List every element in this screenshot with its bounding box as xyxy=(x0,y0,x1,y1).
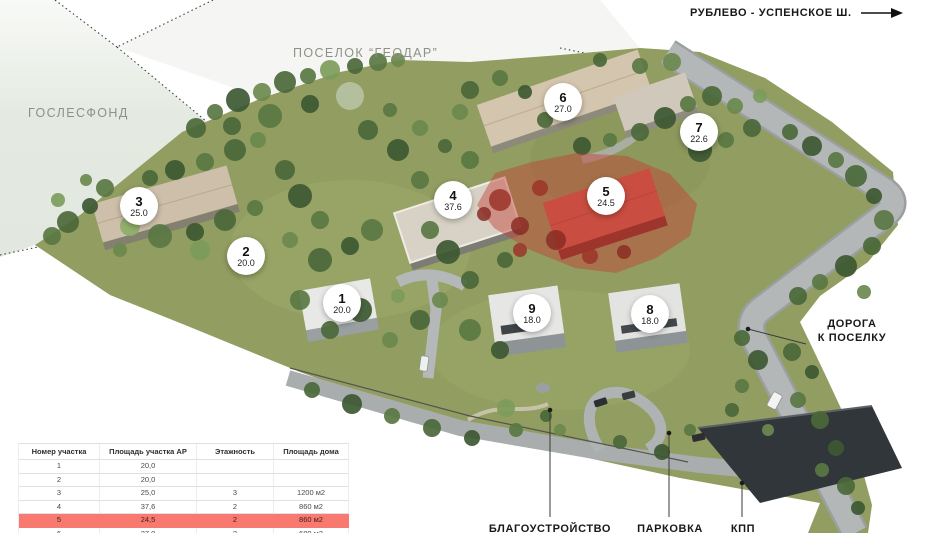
plot-area: 24.5 xyxy=(597,198,615,208)
highlighted-tree xyxy=(617,245,631,259)
tree xyxy=(80,174,92,186)
plot-area: 37.6 xyxy=(444,202,462,212)
plot-number: 2 xyxy=(242,245,249,258)
tree xyxy=(663,53,681,71)
tree xyxy=(258,104,282,128)
plot-marker-4[interactable]: 4 37.6 xyxy=(434,181,472,219)
tree xyxy=(358,120,378,140)
tree xyxy=(654,107,676,129)
plot-marker-2[interactable]: 2 20.0 xyxy=(227,237,265,275)
tree xyxy=(811,411,829,429)
tree xyxy=(866,188,882,204)
plot-marker-6[interactable]: 6 27.0 xyxy=(544,83,582,121)
table-cell: 3 xyxy=(197,487,274,501)
tree xyxy=(253,83,271,101)
tree xyxy=(718,132,734,148)
tree xyxy=(461,151,479,169)
tree xyxy=(805,365,819,379)
tree xyxy=(452,104,468,120)
tree xyxy=(275,160,295,180)
tree xyxy=(308,248,332,272)
plot-number: 8 xyxy=(646,303,653,316)
tree xyxy=(383,103,397,117)
table-cell: 20,0 xyxy=(100,474,197,488)
table-cell: 2 xyxy=(197,514,274,528)
plot-table: Номер участка Площадь участка АР Этажнос… xyxy=(18,443,349,533)
tree xyxy=(412,120,428,136)
tree xyxy=(783,343,801,361)
tree xyxy=(497,252,513,268)
plot-area: 22.6 xyxy=(690,134,708,144)
tree xyxy=(304,382,320,398)
tree xyxy=(226,88,250,112)
tree xyxy=(421,221,439,239)
tree xyxy=(113,243,127,257)
plot-area: 18.0 xyxy=(523,315,541,325)
tree xyxy=(874,210,894,230)
tree xyxy=(290,290,310,310)
plot-number: 4 xyxy=(449,189,456,202)
tree xyxy=(684,424,696,436)
tree xyxy=(411,171,429,189)
tree xyxy=(631,123,649,141)
tree xyxy=(336,82,364,110)
tree xyxy=(727,98,743,114)
forest-label: ГОСЛЕСФОНД xyxy=(28,106,129,120)
table-cell: 27,0 xyxy=(100,528,197,533)
tree xyxy=(851,501,865,515)
plot-number: 6 xyxy=(559,91,566,104)
tree xyxy=(632,58,648,74)
tree xyxy=(207,104,223,120)
tree xyxy=(361,219,383,241)
table-cell xyxy=(197,460,274,474)
tree xyxy=(863,237,881,255)
tree xyxy=(423,419,441,437)
tree xyxy=(497,399,515,417)
highlighted-tree xyxy=(513,243,527,257)
highway-label: РУБЛЕВО - УСПЕНСКОЕ Ш. xyxy=(690,7,903,19)
table-cell: 1 xyxy=(19,460,100,474)
road-label-line1: ДОРОГА xyxy=(806,318,898,332)
tree xyxy=(214,209,236,231)
table-cell: 5 xyxy=(19,514,100,528)
table-header-cell: Площадь дома xyxy=(274,444,349,460)
tree xyxy=(382,332,398,348)
tree xyxy=(223,117,241,135)
tree xyxy=(186,223,204,241)
plot-marker-9[interactable]: 9 18.0 xyxy=(513,294,551,332)
table-cell: 2 xyxy=(19,474,100,488)
tree xyxy=(282,232,298,248)
tree xyxy=(96,179,114,197)
tree xyxy=(387,139,409,161)
tree xyxy=(384,408,400,424)
table-cell: 3 xyxy=(19,487,100,501)
tree xyxy=(148,224,172,248)
tree xyxy=(573,137,591,155)
table-cell: 1200 м2 xyxy=(274,487,349,501)
plot-area: 25.0 xyxy=(130,208,148,218)
tree xyxy=(301,95,319,113)
highlighted-tree xyxy=(546,230,566,250)
plot-number: 9 xyxy=(528,302,535,315)
table-cell: 2 xyxy=(197,528,274,533)
table-cell: 25,0 xyxy=(100,487,197,501)
plot-number: 5 xyxy=(602,185,609,198)
tree xyxy=(812,274,828,290)
table-cell: 37,6 xyxy=(100,501,197,515)
tree xyxy=(743,119,761,137)
table-cell xyxy=(274,460,349,474)
tree xyxy=(274,71,296,93)
masterplan-page: РУБЛЕВО - УСПЕНСКОЕ Ш. ПОСЕЛОК “ГЕОДАР” … xyxy=(0,0,951,533)
table-cell xyxy=(197,474,274,488)
table-header-cell: Этажность xyxy=(197,444,274,460)
tree xyxy=(491,341,509,359)
tree xyxy=(311,211,329,229)
tree xyxy=(436,240,460,264)
road-to-settlement-label: ДОРОГА К ПОСЕЛКУ xyxy=(806,318,898,345)
tree xyxy=(142,170,158,186)
tree xyxy=(341,237,359,255)
settlement-label: ПОСЕЛОК “ГЕОДАР” xyxy=(293,46,438,60)
tree xyxy=(802,136,822,156)
highlighted-tree xyxy=(511,217,529,235)
table-cell: 24,5 xyxy=(100,514,197,528)
highlighted-tree xyxy=(582,248,598,264)
tree xyxy=(464,430,480,446)
plot-marker-8[interactable]: 8 18.0 xyxy=(631,295,669,333)
tree xyxy=(196,153,214,171)
highway-label-text: РУБЛЕВО - УСПЕНСКОЕ Ш. xyxy=(690,7,852,19)
plot-marker-5[interactable]: 5 24.5 xyxy=(587,177,625,215)
parking-label: ПАРКОВКА xyxy=(637,523,703,533)
tree xyxy=(320,60,340,80)
tree xyxy=(190,240,210,260)
tree xyxy=(857,285,871,299)
plot-marker-7[interactable]: 7 22.6 xyxy=(680,113,718,151)
arrow-right-icon xyxy=(861,7,903,19)
tree xyxy=(613,435,627,449)
tree xyxy=(815,463,829,477)
tree xyxy=(165,160,185,180)
highlighted-tree xyxy=(477,207,491,221)
tree xyxy=(300,68,316,84)
tree xyxy=(509,423,523,437)
table-cell: 20,0 xyxy=(100,460,197,474)
tree xyxy=(57,211,79,233)
tree xyxy=(410,310,430,330)
highlighted-tree xyxy=(532,180,548,196)
plot-number: 7 xyxy=(695,121,702,134)
tree xyxy=(735,379,749,393)
playground-dome xyxy=(536,383,550,393)
tree xyxy=(43,227,61,245)
tree xyxy=(186,118,206,138)
highlighted-tree xyxy=(489,189,511,211)
plot-marker-3[interactable]: 3 25.0 xyxy=(120,187,158,225)
plot-area: 20.0 xyxy=(333,305,351,315)
tree xyxy=(554,424,566,436)
tree xyxy=(702,86,722,106)
plot-number: 3 xyxy=(135,195,142,208)
table-cell: 860 м2 xyxy=(274,514,349,528)
tree xyxy=(391,289,405,303)
plot-marker-1[interactable]: 1 20.0 xyxy=(323,284,361,322)
tree xyxy=(828,440,844,456)
tree xyxy=(224,139,246,161)
tree xyxy=(51,193,65,207)
tree xyxy=(288,184,312,208)
tree xyxy=(725,403,739,417)
tree xyxy=(593,53,607,67)
tree xyxy=(654,444,670,460)
plot-number: 1 xyxy=(338,292,345,305)
table-cell: 4 xyxy=(19,501,100,515)
tree xyxy=(734,330,750,346)
tree xyxy=(461,271,479,289)
tree xyxy=(828,152,844,168)
tree xyxy=(347,58,363,74)
landscaping-label: БЛАГОУСТРОЙСТВО xyxy=(489,523,611,533)
tree xyxy=(680,96,696,112)
tree xyxy=(492,70,508,86)
tree xyxy=(438,139,452,153)
tree xyxy=(835,255,857,277)
plot-area: 20.0 xyxy=(237,258,255,268)
tree xyxy=(748,350,768,370)
table-header-cell: Номер участка xyxy=(19,444,100,460)
tree xyxy=(762,424,774,436)
tree xyxy=(247,200,263,216)
tree xyxy=(845,165,867,187)
tree xyxy=(342,394,362,414)
table-cell: 6 xyxy=(19,528,100,533)
plot-area: 18.0 xyxy=(641,316,659,326)
tree xyxy=(837,477,855,495)
tree xyxy=(782,124,798,140)
tree xyxy=(789,287,807,305)
tree xyxy=(603,133,617,147)
table-cell: 680 м2 xyxy=(274,528,349,533)
table-cell xyxy=(274,474,349,488)
table-header-cell: Площадь участка АР xyxy=(100,444,197,460)
checkpoint-label: КПП xyxy=(731,523,755,533)
tree xyxy=(432,292,448,308)
tree xyxy=(250,132,266,148)
car xyxy=(419,356,429,372)
table-cell: 860 м2 xyxy=(274,501,349,515)
tree xyxy=(459,319,481,341)
tree xyxy=(518,85,532,99)
tree xyxy=(321,321,339,339)
plot-area: 27.0 xyxy=(554,104,572,114)
road-label-line2: К ПОСЕЛКУ xyxy=(806,332,898,346)
tree xyxy=(82,198,98,214)
tree xyxy=(461,81,479,99)
tree xyxy=(790,392,806,408)
tree xyxy=(753,89,767,103)
table-cell: 2 xyxy=(197,501,274,515)
